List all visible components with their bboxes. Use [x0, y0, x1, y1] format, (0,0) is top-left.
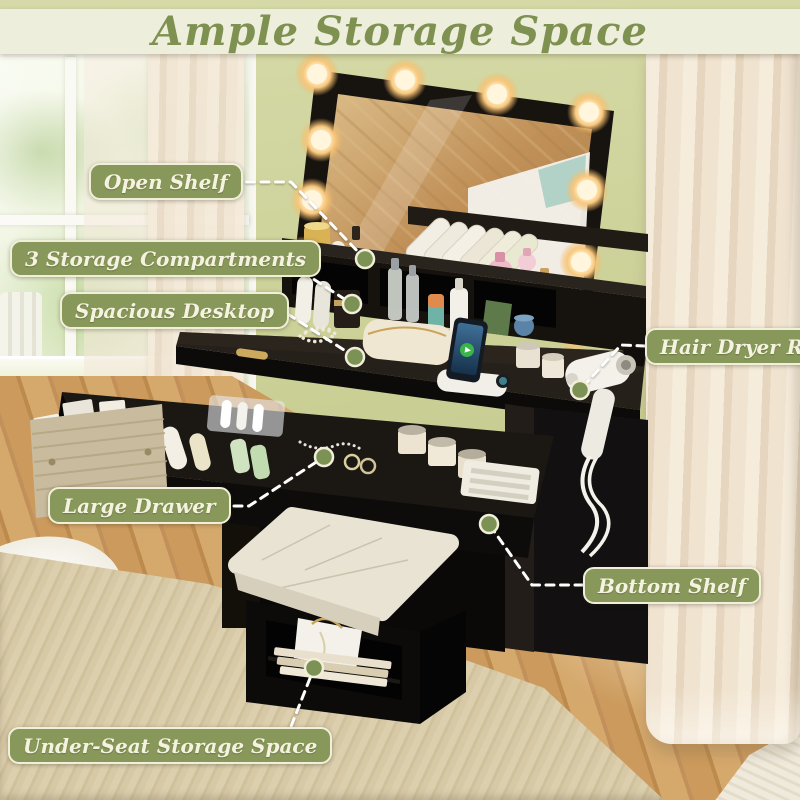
callout-dot-large-drawer [315, 448, 333, 466]
callout-hair-dryer-rack: Hair Dryer Rack [645, 328, 800, 365]
product-feature-image: YOU LUXURY [0, 0, 800, 800]
callout-dot-spacious-desktop [346, 348, 364, 366]
callout-bottom-shelf: Bottom Shelf [583, 567, 761, 604]
callout-large-drawer: Large Drawer [48, 487, 231, 524]
callout-open-shelf: Open Shelf [89, 163, 243, 200]
callout-line-hair-dryer-rack [580, 345, 645, 390]
page-title: Ample Storage Space [152, 9, 648, 54]
callout-line-bottom-shelf [489, 524, 583, 585]
callout-dot-bottom-shelf [480, 515, 498, 533]
callout-under-seat: Under-Seat Storage Space [8, 727, 332, 764]
callout-dot-under-seat [305, 659, 323, 677]
callout-annotations [0, 0, 800, 800]
title-banner: Ample Storage Space [0, 9, 800, 54]
callout-dot-open-shelf [356, 250, 374, 268]
callout-storage-compartments: 3 Storage Compartments [10, 240, 321, 277]
callout-dot-hair-dryer-rack [571, 381, 589, 399]
callout-dot-storage-compartments [343, 295, 361, 313]
callout-spacious-desktop: Spacious Desktop [60, 292, 289, 329]
